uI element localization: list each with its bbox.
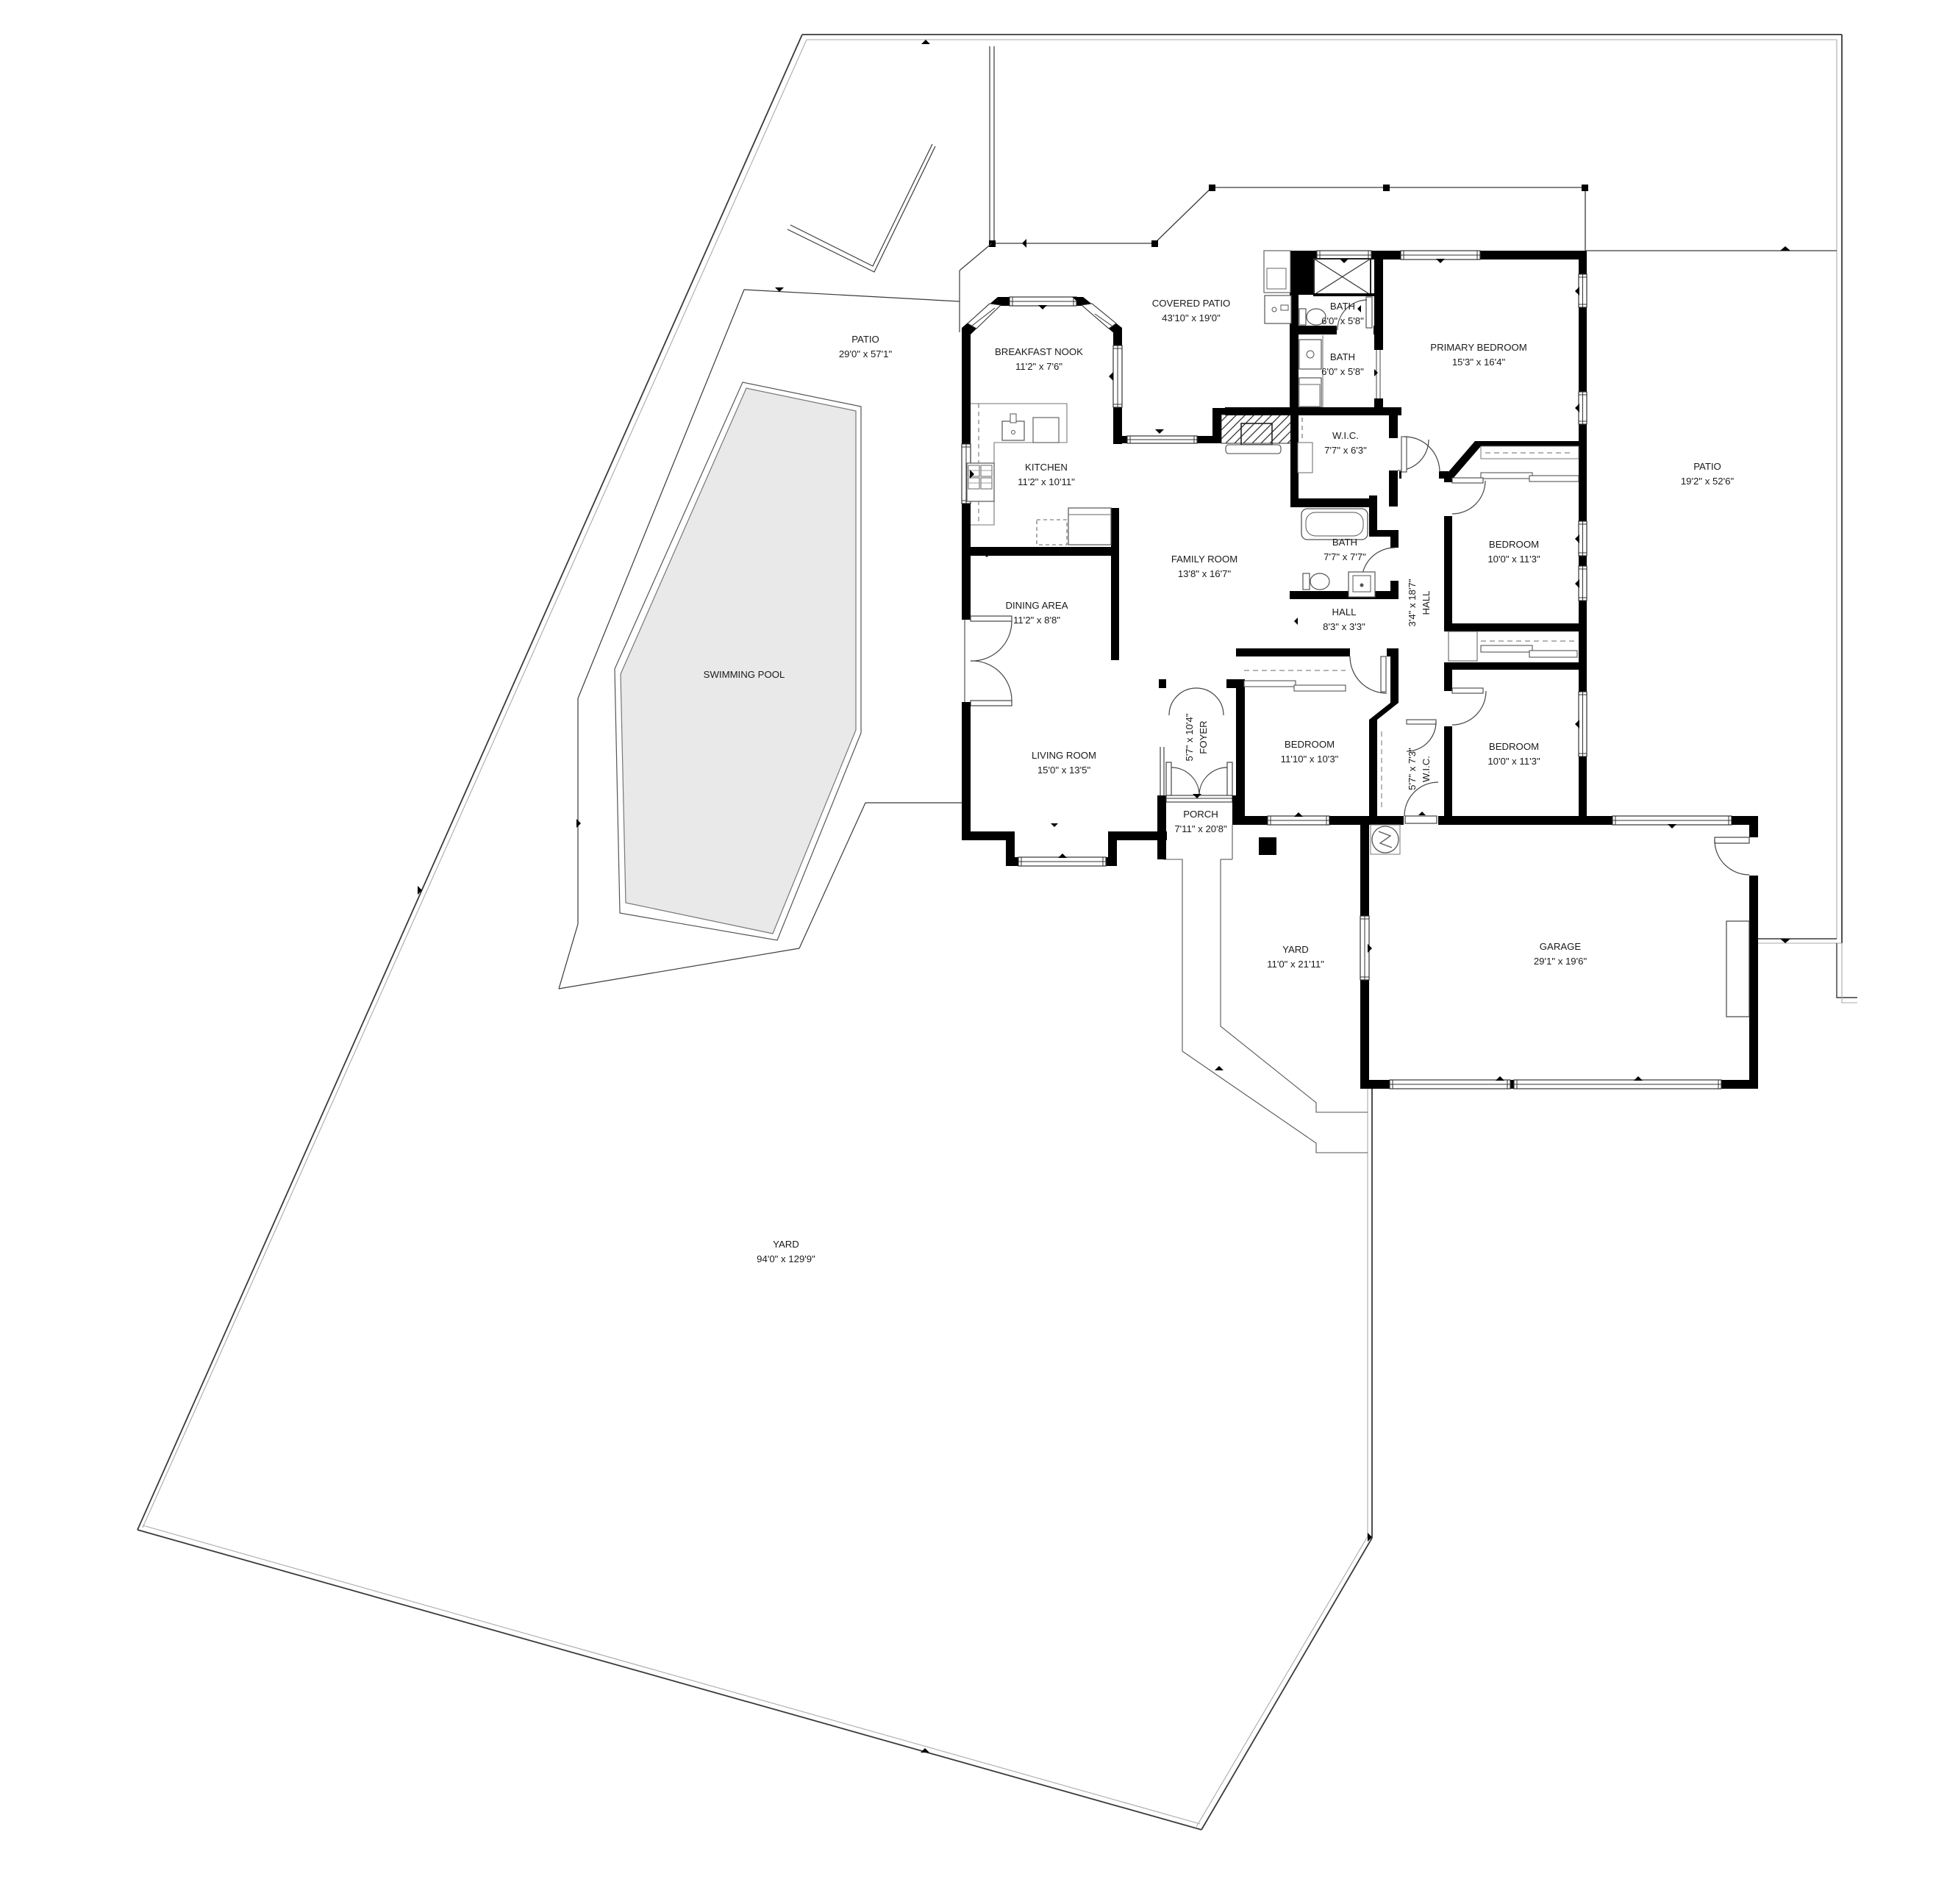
svg-text:FAMILY ROOM: FAMILY ROOM [1171, 554, 1237, 565]
svg-text:3'4" x 18'7": 3'4" x 18'7" [1407, 579, 1418, 626]
svg-text:GARAGE: GARAGE [1540, 941, 1582, 952]
svg-text:BEDROOM: BEDROOM [1489, 539, 1539, 550]
svg-text:94'0" x 129'9": 94'0" x 129'9" [757, 1253, 815, 1264]
svg-text:7'7" x 7'7": 7'7" x 7'7" [1324, 551, 1366, 562]
svg-text:PORCH: PORCH [1183, 809, 1218, 820]
svg-text:7'7" x 6'3": 7'7" x 6'3" [1324, 445, 1367, 456]
svg-text:15'0" x 13'5": 15'0" x 13'5" [1037, 765, 1091, 776]
svg-text:HALL: HALL [1332, 606, 1357, 618]
svg-text:BATH: BATH [1332, 537, 1357, 548]
svg-text:PATIO: PATIO [851, 334, 879, 345]
svg-text:COVERED PATIO: COVERED PATIO [1152, 298, 1231, 309]
svg-text:FOYER: FOYER [1198, 720, 1209, 754]
svg-text:SWIMMING POOL: SWIMMING POOL [704, 669, 785, 680]
svg-text:5'7" x 10'4": 5'7" x 10'4" [1184, 713, 1195, 761]
svg-text:BEDROOM: BEDROOM [1285, 739, 1335, 750]
svg-text:29'1" x 19'6": 29'1" x 19'6" [1534, 956, 1587, 967]
svg-text:PRIMARY BEDROOM: PRIMARY BEDROOM [1430, 342, 1526, 353]
svg-text:W.I.C.: W.I.C. [1421, 756, 1432, 782]
svg-text:PATIO: PATIO [1693, 461, 1721, 472]
svg-text:W.I.C.: W.I.C. [1332, 430, 1359, 441]
svg-text:DINING AREA: DINING AREA [1005, 600, 1068, 611]
svg-text:KITCHEN: KITCHEN [1025, 462, 1068, 473]
svg-text:11'2" x 8'8": 11'2" x 8'8" [1013, 615, 1060, 626]
svg-text:HALL: HALL [1421, 591, 1432, 615]
svg-text:29'0" x 57'1": 29'0" x 57'1" [839, 348, 893, 359]
svg-text:11'2" x 10'11": 11'2" x 10'11" [1018, 476, 1075, 487]
svg-text:YARD: YARD [773, 1239, 799, 1250]
svg-text:BATH: BATH [1330, 351, 1355, 362]
svg-text:YARD: YARD [1282, 944, 1309, 955]
svg-text:13'8" x 16'7": 13'8" x 16'7" [1178, 568, 1232, 579]
svg-text:8'3" x 3'3": 8'3" x 3'3" [1323, 621, 1365, 632]
svg-text:BEDROOM: BEDROOM [1489, 741, 1539, 752]
svg-text:LIVING ROOM: LIVING ROOM [1032, 750, 1096, 761]
svg-text:15'3" x 16'4": 15'3" x 16'4" [1452, 357, 1506, 368]
svg-text:10'0" x 11'3": 10'0" x 11'3" [1487, 554, 1540, 565]
svg-text:43'10" x 19'0": 43'10" x 19'0" [1162, 312, 1221, 323]
svg-text:7'11" x 20'8": 7'11" x 20'8" [1174, 823, 1227, 834]
svg-text:BATH: BATH [1330, 301, 1355, 312]
svg-text:11'10" x 10'3": 11'10" x 10'3" [1281, 754, 1339, 765]
svg-text:10'0" x 11'3": 10'0" x 11'3" [1487, 756, 1540, 767]
svg-text:5'7" x 7'3": 5'7" x 7'3" [1407, 748, 1418, 790]
svg-text:BREAKFAST NOOK: BREAKFAST NOOK [995, 346, 1083, 357]
svg-text:11'0" x 21'11": 11'0" x 21'11" [1267, 959, 1324, 970]
svg-text:6'0" x 5'8": 6'0" x 5'8" [1321, 366, 1364, 377]
svg-text:19'2" x 52'6": 19'2" x 52'6" [1681, 476, 1735, 487]
svg-text:11'2" x 7'6": 11'2" x 7'6" [1015, 361, 1062, 372]
svg-text:6'0" x 5'8": 6'0" x 5'8" [1321, 315, 1364, 326]
